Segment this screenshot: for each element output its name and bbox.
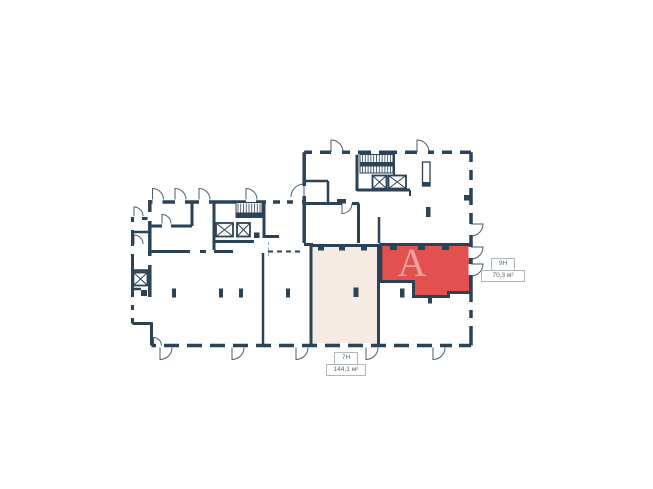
unit-area-text: 70,3 м² xyxy=(481,270,525,283)
staircase-upper-icon xyxy=(360,155,393,174)
unit-7n-label[interactable]: 7Н 144,1 м² xyxy=(326,352,366,376)
watermark-text: А xyxy=(398,240,427,285)
unit-id-text: 7Н xyxy=(334,352,358,364)
floor-plan-svg: А xyxy=(0,0,653,489)
boundary-dashes xyxy=(268,242,303,258)
unit-area-text: 144,1 м² xyxy=(326,364,366,377)
unit-9n-label[interactable]: 9Н 70,3 м² xyxy=(481,258,525,282)
staircase-left-icon xyxy=(236,203,262,218)
floor-plan-canvas: А 9Н 70,3 м² 7Н 144,1 м² xyxy=(0,0,653,489)
unit-id-text: 9Н xyxy=(491,258,515,270)
unit-7n-region[interactable] xyxy=(311,246,379,346)
